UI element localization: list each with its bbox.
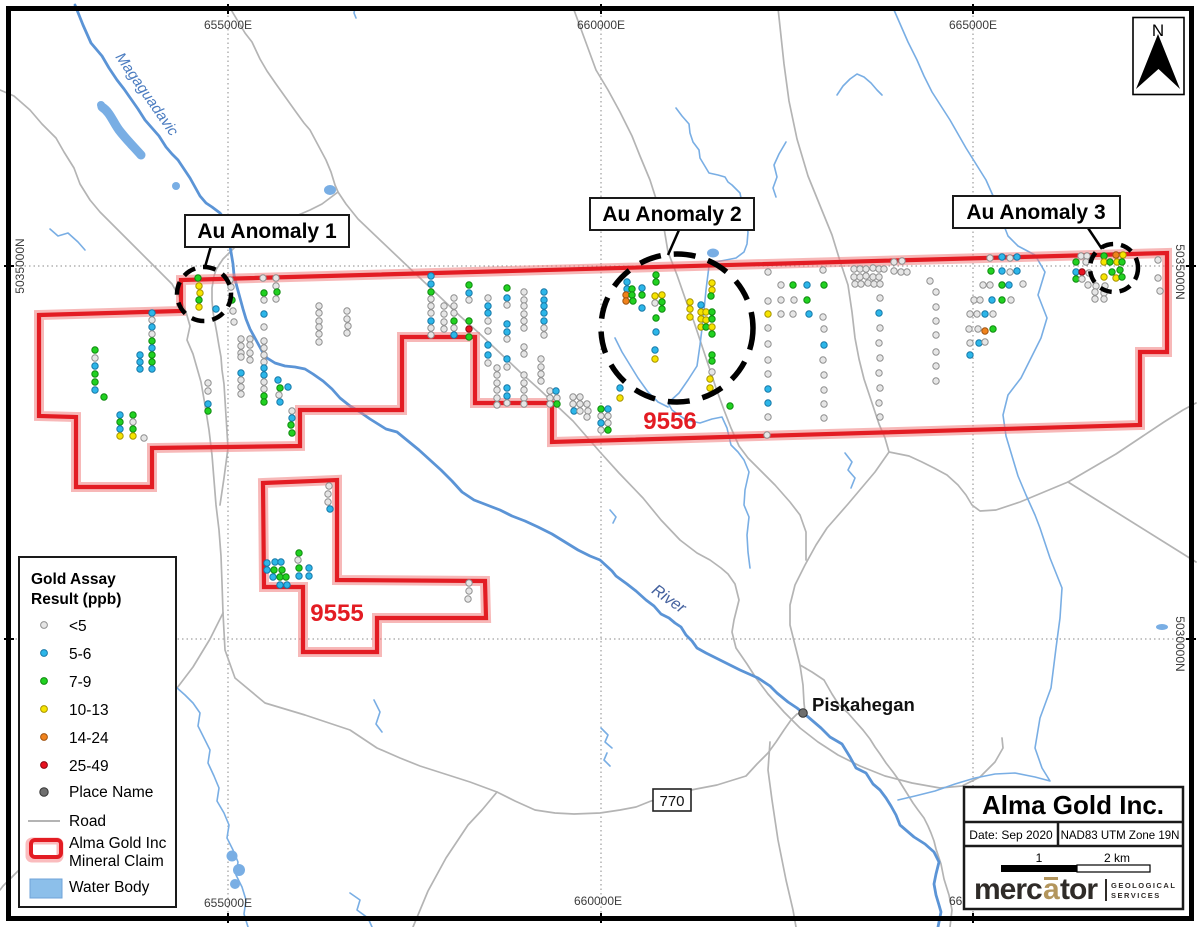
svg-text:5035000N: 5035000N: [1173, 244, 1187, 299]
svg-text:655000E: 655000E: [204, 18, 252, 32]
svg-text:Mineral Claim: Mineral Claim: [69, 853, 164, 870]
svg-text:Piskahegan: Piskahegan: [812, 694, 915, 715]
svg-text:Au Anomaly 2: Au Anomaly 2: [602, 203, 741, 226]
svg-text:Alma Gold Inc: Alma Gold Inc: [69, 835, 167, 852]
svg-text:Alma Gold Inc.: Alma Gold Inc.: [982, 790, 1164, 820]
svg-text:665000E: 665000E: [949, 18, 997, 32]
svg-text:Road: Road: [69, 813, 106, 830]
svg-text:660000E: 660000E: [577, 18, 625, 32]
svg-text:tor: tor: [1060, 873, 1098, 906]
svg-text:SERVICES: SERVICES: [1111, 891, 1161, 900]
svg-text:merc: merc: [974, 873, 1042, 906]
svg-text:25-49: 25-49: [69, 758, 109, 775]
svg-text:Date: Sep 2020: Date: Sep 2020: [969, 828, 1053, 842]
svg-text:5035000N: 5035000N: [13, 238, 27, 293]
svg-text:NAD83 UTM Zone 19N: NAD83 UTM Zone 19N: [1061, 830, 1180, 842]
svg-text:GEOLOGICAL: GEOLOGICAL: [1111, 881, 1176, 890]
svg-text:14-24: 14-24: [69, 730, 109, 747]
svg-text:660000E: 660000E: [574, 894, 622, 908]
svg-text:655000E: 655000E: [204, 896, 252, 910]
svg-text:9556: 9556: [643, 408, 696, 435]
svg-text:2 km: 2 km: [1104, 851, 1130, 865]
svg-text:5030000N: 5030000N: [1173, 616, 1187, 671]
svg-text:Au Anomaly 3: Au Anomaly 3: [966, 201, 1105, 224]
svg-text:7-9: 7-9: [69, 674, 91, 691]
svg-text:10-13: 10-13: [69, 702, 109, 719]
svg-text:9555: 9555: [310, 600, 363, 627]
svg-text:5-6: 5-6: [69, 646, 91, 663]
svg-text:Gold Assay: Gold Assay: [31, 571, 116, 588]
svg-text:Place Name: Place Name: [69, 784, 153, 801]
svg-text:1: 1: [1036, 851, 1043, 865]
svg-text:<5: <5: [69, 618, 87, 635]
svg-text:Au Anomaly 1: Au Anomaly 1: [197, 220, 337, 243]
svg-text:Water Body: Water Body: [69, 879, 150, 896]
svg-text:Result (ppb): Result (ppb): [31, 591, 121, 608]
svg-text:770: 770: [659, 793, 684, 810]
